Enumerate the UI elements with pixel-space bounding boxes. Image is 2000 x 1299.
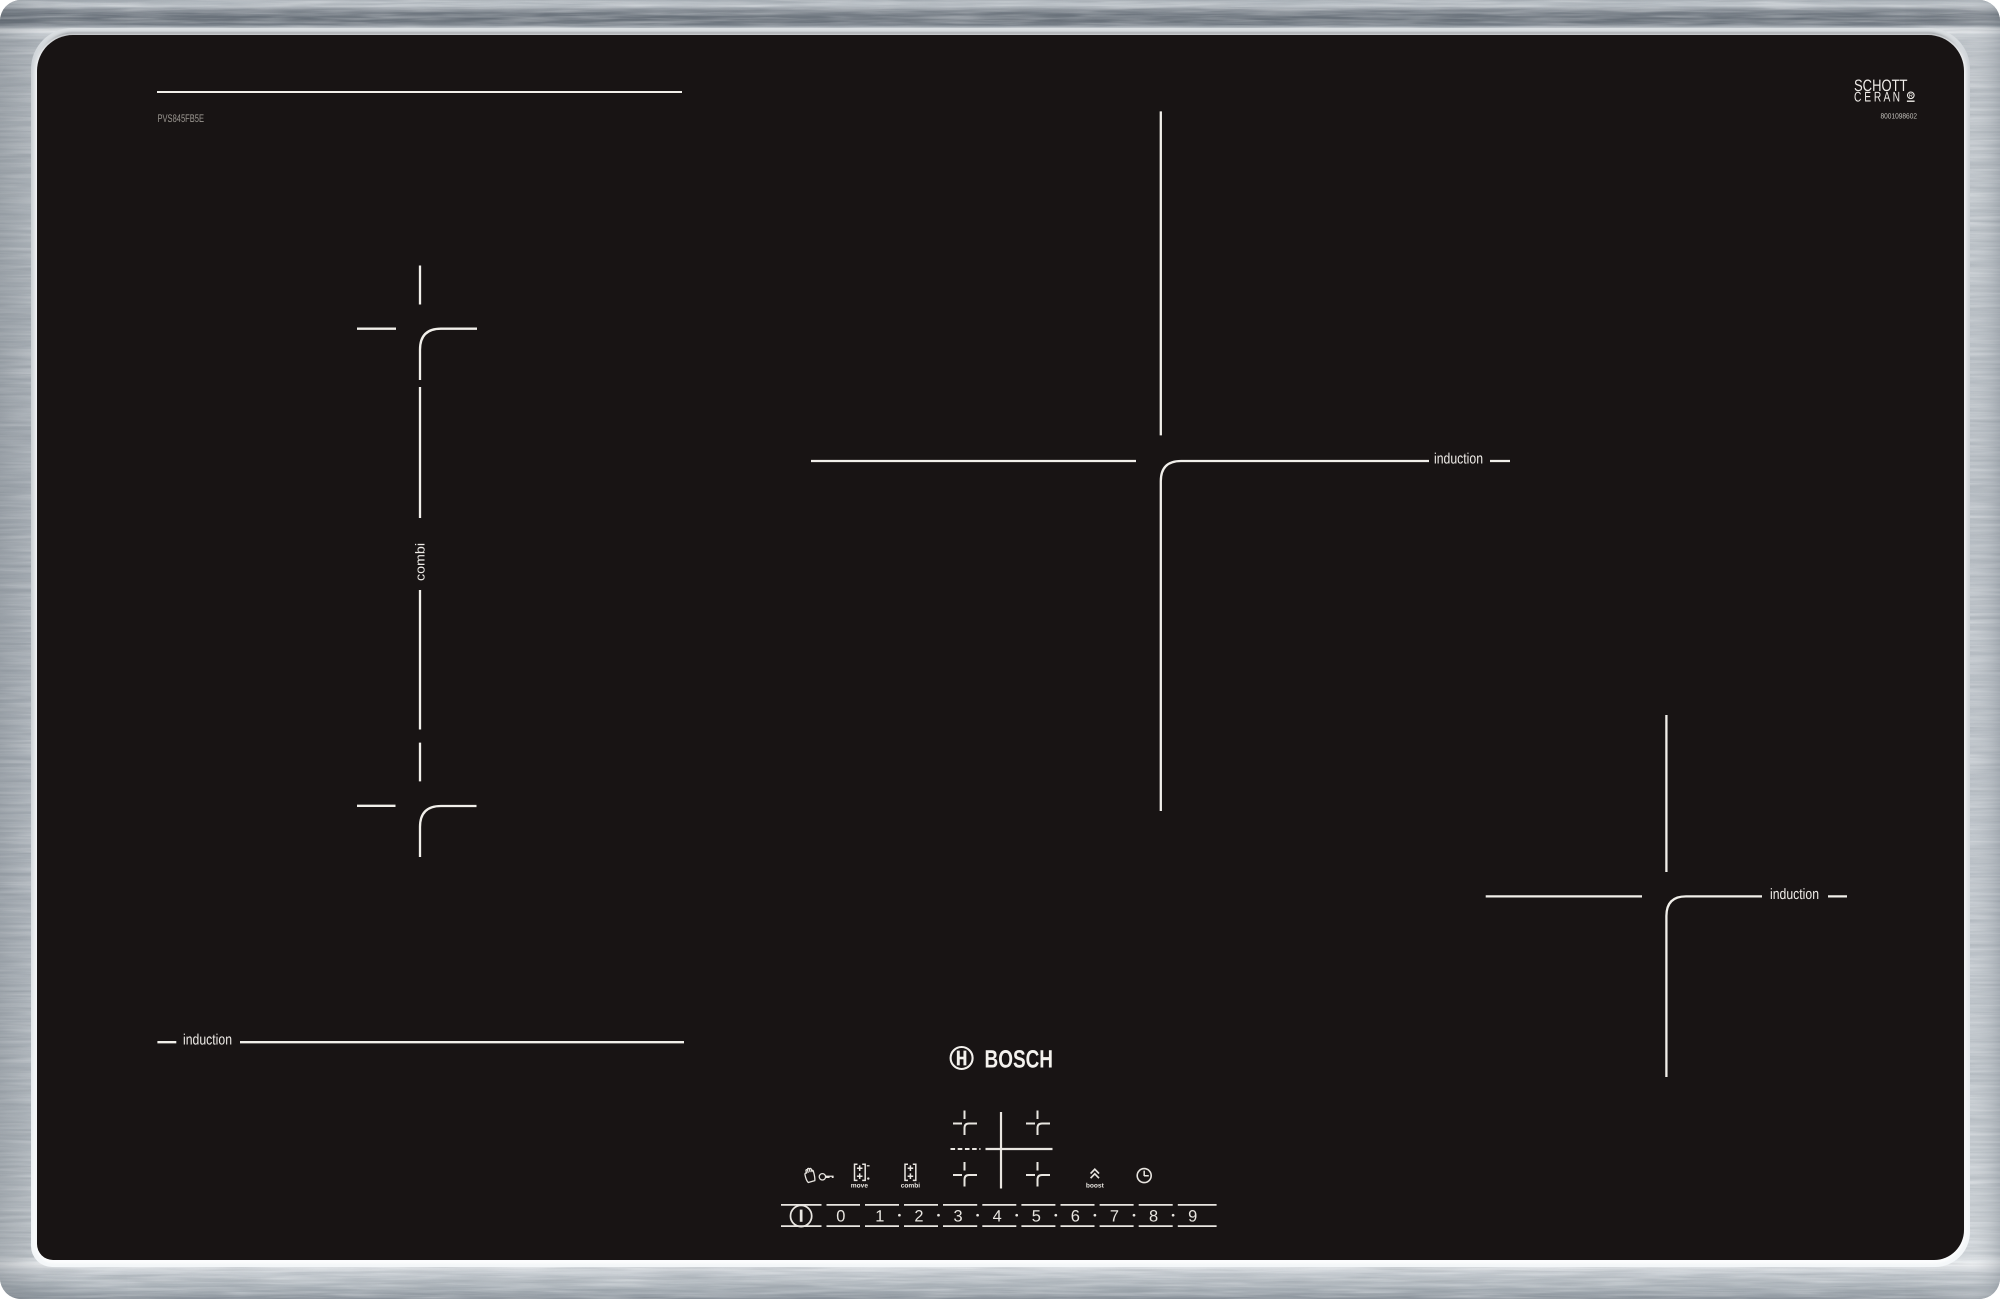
svg-text:8001098602: 8001098602 — [1881, 112, 1918, 121]
svg-text:5: 5 — [1032, 1208, 1041, 1226]
svg-text:0: 0 — [836, 1208, 845, 1226]
svg-text:7: 7 — [1110, 1208, 1119, 1226]
svg-text:induction: induction — [1434, 450, 1483, 467]
svg-text:9: 9 — [1188, 1208, 1197, 1226]
svg-text:1: 1 — [875, 1208, 884, 1226]
svg-text:6: 6 — [1071, 1208, 1080, 1226]
svg-text:PVS845FB5E: PVS845FB5E — [158, 113, 205, 125]
svg-text:combi: combi — [413, 543, 428, 581]
svg-text:boost: boost — [1086, 1183, 1105, 1190]
svg-text:R: R — [1909, 94, 1913, 100]
svg-text:2: 2 — [914, 1208, 923, 1226]
svg-text:induction: induction — [183, 1032, 232, 1049]
svg-text:combi: combi — [901, 1183, 921, 1190]
svg-text:induction: induction — [1770, 886, 1819, 903]
svg-text:8: 8 — [1149, 1208, 1158, 1226]
svg-text:C E R A N: C E R A N — [1854, 89, 1900, 105]
svg-text:BOSCH: BOSCH — [985, 1046, 1054, 1074]
svg-text:4: 4 — [993, 1208, 1002, 1226]
svg-text:move: move — [851, 1183, 869, 1190]
svg-text:3: 3 — [953, 1208, 962, 1226]
